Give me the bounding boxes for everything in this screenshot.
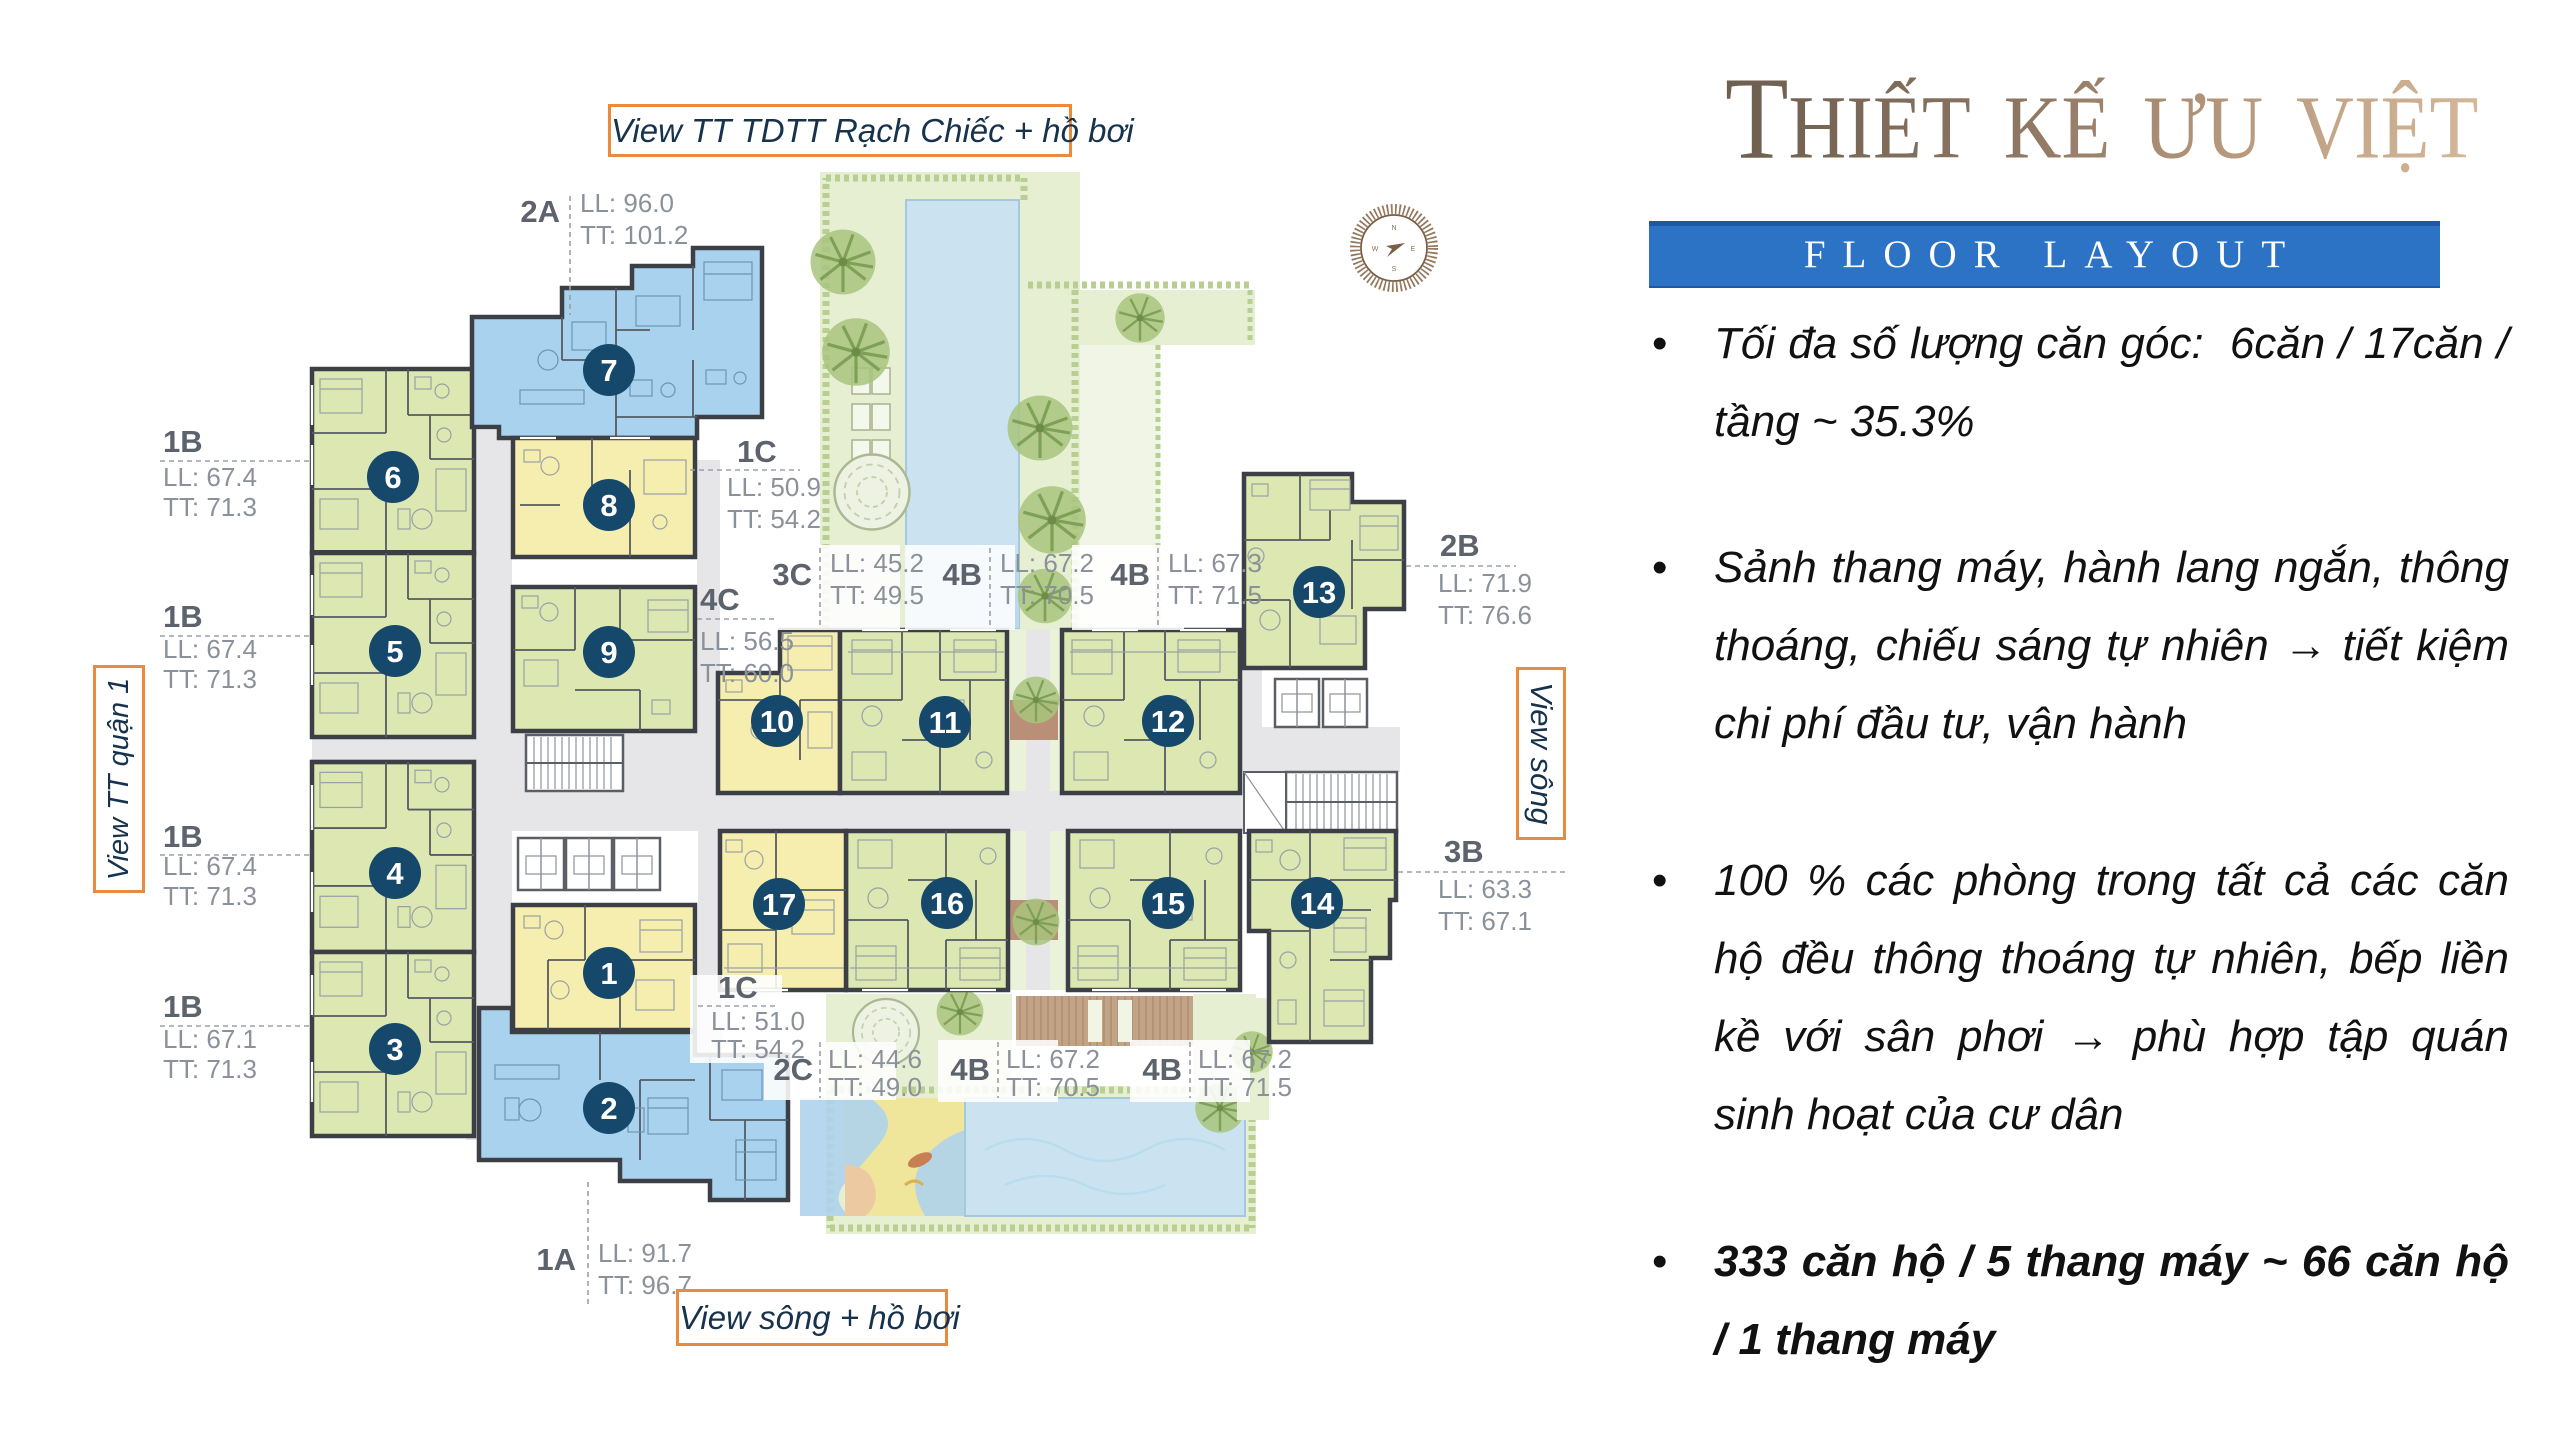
- svg-text:TT: 71.3: TT: 71.3: [163, 664, 257, 694]
- svg-text:LL: 67.1: LL: 67.1: [163, 1024, 257, 1054]
- svg-text:3C: 3C: [772, 557, 812, 592]
- svg-text:TT: 49.5: TT: 49.5: [830, 580, 924, 610]
- svg-text:2A: 2A: [520, 194, 560, 229]
- svg-text:5: 5: [386, 634, 403, 669]
- svg-text:TT: 101.2: TT: 101.2: [580, 220, 688, 250]
- svg-text:15: 15: [1151, 886, 1185, 921]
- svg-text:LL: 51.0: LL: 51.0: [711, 1006, 805, 1036]
- svg-text:LL: 67.2: LL: 67.2: [1006, 1044, 1100, 1074]
- svg-text:4B: 4B: [1110, 557, 1150, 592]
- svg-text:LL: 67.4: LL: 67.4: [163, 462, 257, 492]
- svg-text:1B: 1B: [163, 989, 203, 1024]
- svg-text:2: 2: [600, 1091, 617, 1126]
- svg-text:2B: 2B: [1440, 528, 1480, 563]
- svg-text:LL: 45.2: LL: 45.2: [830, 548, 924, 578]
- svg-text:TT: 71.3: TT: 71.3: [163, 1054, 257, 1084]
- svg-text:LL: 67.2: LL: 67.2: [1198, 1044, 1292, 1074]
- svg-text:13: 13: [1302, 575, 1336, 610]
- svg-text:LL: 91.7: LL: 91.7: [598, 1238, 692, 1268]
- svg-text:TT: 49.0: TT: 49.0: [828, 1072, 922, 1102]
- svg-text:TT: 71.5: TT: 71.5: [1198, 1072, 1292, 1102]
- svg-text:4B: 4B: [942, 557, 982, 592]
- svg-text:4C: 4C: [700, 582, 740, 617]
- svg-text:TT: 60.0: TT: 60.0: [700, 658, 794, 688]
- svg-text:S: S: [1392, 266, 1397, 273]
- svg-text:1C: 1C: [737, 434, 777, 469]
- svg-text:W: W: [1372, 246, 1379, 253]
- svg-text:LL: 67.4: LL: 67.4: [163, 851, 257, 881]
- svg-text:1B: 1B: [163, 819, 203, 854]
- svg-text:11: 11: [929, 705, 962, 740]
- svg-text:LL: 56.5: LL: 56.5: [700, 626, 794, 656]
- svg-text:LL: 50.9: LL: 50.9: [727, 472, 821, 502]
- svg-text:14: 14: [1300, 886, 1335, 921]
- svg-text:TT: 71.3: TT: 71.3: [163, 881, 257, 911]
- svg-text:LL: 67.2: LL: 67.2: [1000, 548, 1094, 578]
- svg-text:TT: 71.5: TT: 71.5: [1168, 580, 1262, 610]
- svg-text:TT: 70.5: TT: 70.5: [1000, 580, 1094, 610]
- svg-text:8: 8: [600, 488, 617, 523]
- svg-text:4B: 4B: [1142, 1052, 1182, 1087]
- svg-text:7: 7: [600, 353, 617, 388]
- svg-text:TT: 67.1: TT: 67.1: [1438, 906, 1532, 936]
- svg-text:TT: 54.2: TT: 54.2: [727, 504, 821, 534]
- svg-text:E: E: [1411, 246, 1416, 253]
- svg-text:LL: 67.4: LL: 67.4: [163, 634, 257, 664]
- svg-text:TT: 70.5: TT: 70.5: [1006, 1072, 1100, 1102]
- svg-text:1B: 1B: [163, 424, 203, 459]
- svg-text:1: 1: [600, 956, 617, 991]
- svg-text:LL: 71.9: LL: 71.9: [1438, 568, 1532, 598]
- svg-text:N: N: [1391, 225, 1396, 232]
- svg-text:1B: 1B: [163, 599, 203, 634]
- svg-text:6: 6: [384, 460, 401, 495]
- svg-text:17: 17: [762, 887, 796, 922]
- svg-text:9: 9: [600, 635, 617, 670]
- svg-text:1C: 1C: [718, 970, 758, 1005]
- svg-text:3B: 3B: [1444, 834, 1484, 869]
- svg-text:2C: 2C: [773, 1052, 813, 1087]
- svg-text:4: 4: [386, 856, 404, 891]
- svg-text:1A: 1A: [536, 1242, 576, 1277]
- svg-text:16: 16: [930, 886, 964, 921]
- svg-text:3: 3: [386, 1032, 403, 1067]
- svg-text:TT: 71.3: TT: 71.3: [163, 492, 257, 522]
- svg-text:4B: 4B: [950, 1052, 990, 1087]
- svg-text:12: 12: [1151, 704, 1185, 739]
- svg-text:LL: 63.3: LL: 63.3: [1438, 874, 1532, 904]
- svg-text:LL: 96.0: LL: 96.0: [580, 188, 674, 218]
- svg-text:LL: 44.6: LL: 44.6: [828, 1044, 922, 1074]
- svg-text:TT: 76.6: TT: 76.6: [1438, 600, 1532, 630]
- svg-text:10: 10: [760, 704, 794, 739]
- svg-text:LL: 67.3: LL: 67.3: [1168, 548, 1262, 578]
